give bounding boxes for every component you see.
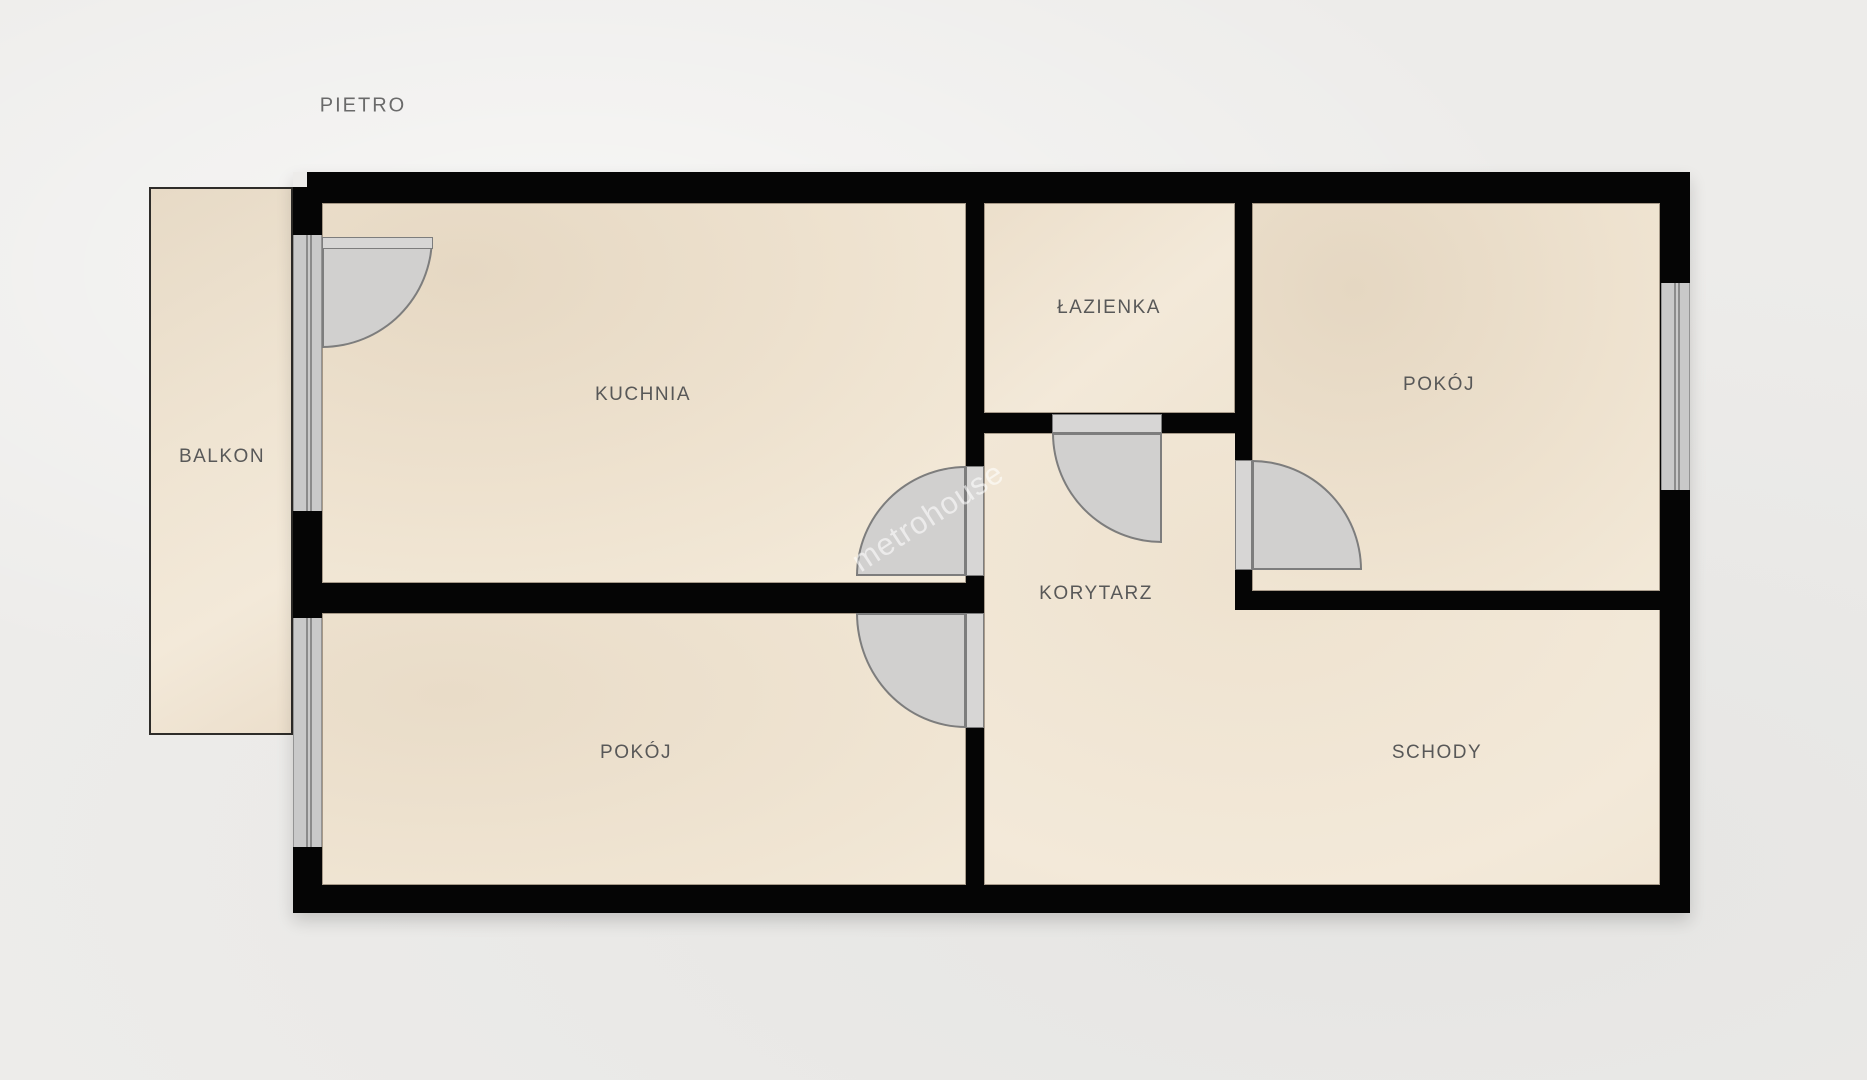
bathroom-door-leaf bbox=[1052, 414, 1162, 433]
top-wall-notch bbox=[293, 172, 307, 187]
pokoj-top-door-leaf bbox=[1235, 460, 1252, 570]
room-label-pokoj-bottom: POKÓJ bbox=[600, 742, 672, 764]
pokoj-bottom-west-window bbox=[293, 618, 322, 847]
room-label-schody: SCHODY bbox=[1392, 742, 1482, 764]
pokoj-top-east-window bbox=[1661, 283, 1690, 490]
room-label-kuchnia: KUCHNIA bbox=[595, 384, 691, 406]
kitchen-west-window bbox=[293, 348, 322, 511]
room-label-pokoj-top: POKÓJ bbox=[1403, 374, 1475, 396]
room-label-korytarz: KORYTARZ bbox=[1039, 583, 1153, 605]
floor-title: PIETRO bbox=[320, 95, 406, 118]
balcony-door-threshold-window bbox=[293, 235, 322, 348]
pokoj-bottom-door-leaf bbox=[966, 613, 984, 728]
floorplan-canvas: PIETRO BALKON KUCHNIA ŁAZIENKA POKÓJ KOR… bbox=[0, 0, 1867, 1080]
kitchen-door-leaf bbox=[966, 466, 984, 576]
room-label-balkon: BALKON bbox=[179, 446, 265, 468]
room-label-lazienka: ŁAZIENKA bbox=[1057, 297, 1161, 319]
balcony-door-leaf bbox=[322, 237, 433, 249]
